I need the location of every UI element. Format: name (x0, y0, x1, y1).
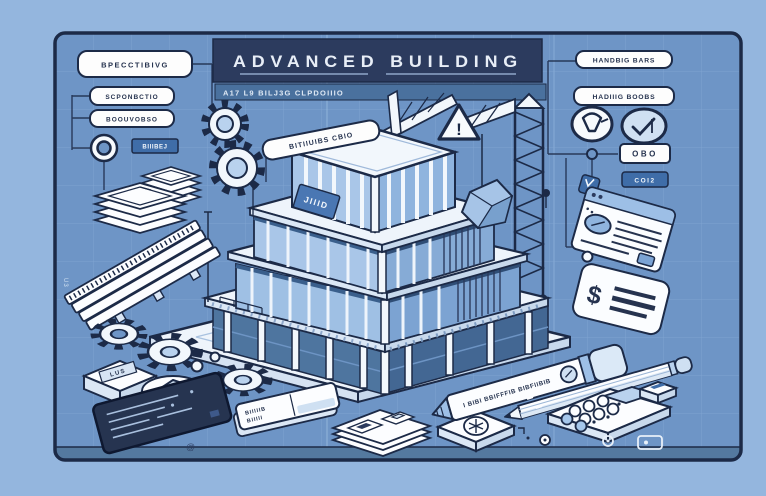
label-right-2-text: HADIIIG BOOBS (593, 94, 656, 101)
label-right-1-text: HANDBIG BARS (593, 58, 655, 65)
label-left-2: SCPONBCTIO (90, 87, 174, 105)
right-tag-2: COI2 (622, 172, 668, 187)
title-banner: ADVANCED BUILDING (213, 39, 542, 82)
blueprint-panel: ADVANCED BUILDING A17 L9 BILJ3G CLPDOIII… (55, 33, 741, 460)
funnel-badge-icon (572, 107, 612, 141)
left-tag-text: BIIIBEJ (142, 145, 167, 151)
blueprint-illustration: ADVANCED BUILDING A17 L9 BILJ3G CLPDOIII… (0, 0, 766, 496)
ring-mark (211, 353, 220, 362)
label-left-3: BOOUVOBSO (90, 110, 174, 127)
dot-mark (644, 441, 648, 445)
dot-mark (544, 439, 547, 442)
label-right-2: HADIIIG BOOBS (574, 87, 674, 105)
spiral-mark: @ (186, 442, 195, 452)
node-dot (587, 149, 597, 159)
ring-mark (192, 361, 203, 372)
dot-mark (607, 440, 610, 443)
label-left-2-text: SCPONBCTIO (105, 94, 158, 101)
subtitle-text: A17 L9 BILJ3G CLPDOIIIO (223, 89, 344, 98)
label-left-1-text: BPECCTIBIVG (101, 61, 169, 70)
ring-post-icon (91, 135, 117, 161)
edge-mark: U3 (62, 278, 68, 288)
label-left-3-text: BOOUVOBSO (106, 117, 158, 124)
blueprint-canvas: ADVANCED BUILDING A17 L9 BILJ3G CLPDOIII… (0, 0, 766, 496)
right-tag-1-text: OBO (632, 150, 658, 159)
label-right-1: HANDBIG BARS (576, 51, 672, 68)
warning-mark: ! (456, 120, 462, 139)
right-tag-2-text: COI2 (634, 178, 655, 185)
check-badge-icon (622, 109, 666, 143)
page-title: ADVANCED BUILDING (233, 52, 523, 71)
left-tag: BIIIBEJ (132, 139, 178, 153)
subtitle-strip: A17 L9 BILJ3G CLPDOIIIO (215, 84, 546, 100)
label-left-1: BPECCTIBIVG (78, 51, 192, 77)
right-tag-1: OBO (620, 144, 670, 163)
